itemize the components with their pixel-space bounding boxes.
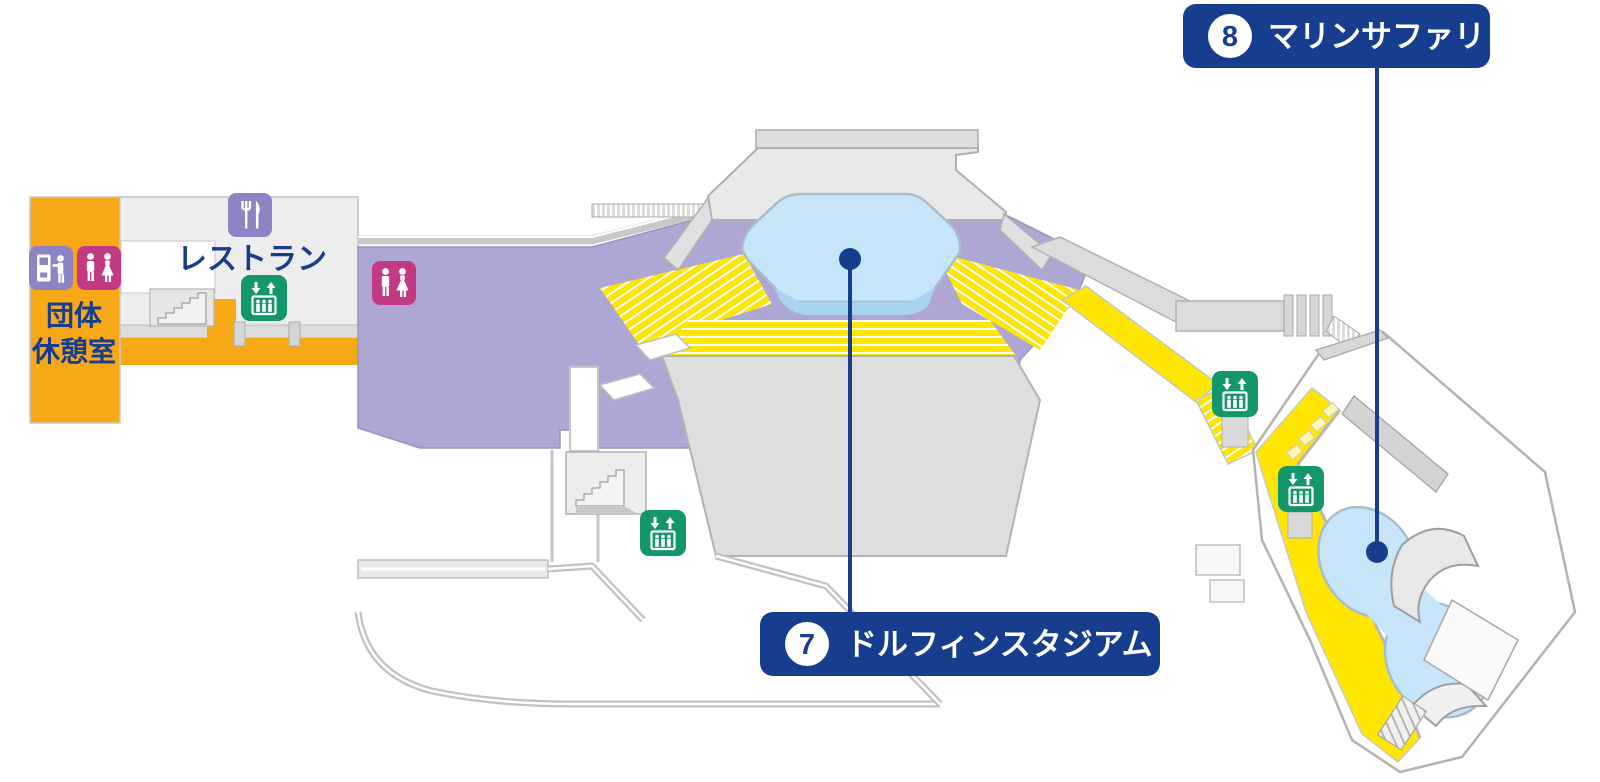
restaurant-label: レストラン [177, 243, 327, 276]
elevator-shaft-wall [289, 322, 300, 346]
group-rest-room-label-line1: 団体 [46, 300, 103, 331]
restroom-icon-group-room [77, 246, 121, 290]
side-block [1196, 545, 1240, 575]
badge-7-number: 7 [799, 629, 815, 661]
connector-tube [1176, 301, 1284, 331]
elevator-icon-lower [640, 510, 686, 556]
railing-ribbed [592, 204, 708, 217]
side-block [1210, 580, 1244, 602]
callout-dot-7 [839, 248, 861, 270]
seating-south [662, 320, 1016, 356]
restaurant-icon [228, 193, 272, 237]
elevator-shaft-wall [234, 322, 245, 346]
elevator-shaft-wall [1288, 512, 1312, 538]
badge-8-number: 8 [1222, 21, 1238, 53]
locker-icon [29, 246, 73, 290]
group-rest-room-label-line2: 休憩室 [31, 335, 116, 367]
floor-map-svg: 団体 休憩室 レストラン [0, 0, 1600, 782]
elevator-shaft-wall [1222, 417, 1248, 447]
badge-8-label: マリンサファリ [1268, 19, 1485, 54]
elevator-icon-walkway [1212, 371, 1258, 417]
elevator-icon-restaurant [241, 275, 287, 321]
aquarium-floor-map: 団体 休憩室 レストラン [0, 0, 1600, 782]
callout-dot-8 [1366, 541, 1388, 563]
badge-7-label: ドルフィンスタジアム [846, 627, 1153, 662]
left-staircase [150, 289, 214, 326]
central-staircase [566, 452, 646, 514]
restroom-icon-concourse [372, 261, 416, 305]
elevator-icon-marine-safari [1278, 466, 1324, 512]
concourse-corridor [570, 367, 598, 451]
